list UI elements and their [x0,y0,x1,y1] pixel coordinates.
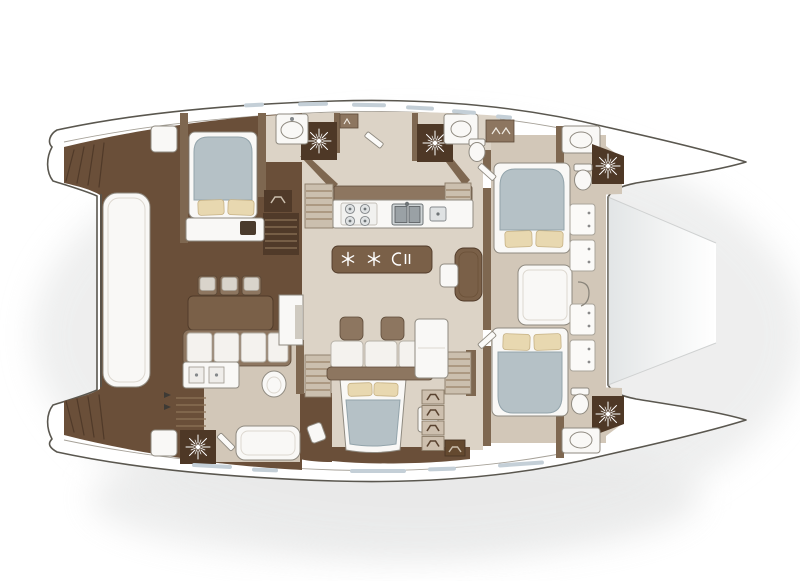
wall [258,113,266,197]
drawer-handle-icon [422,437,444,451]
sofa-cushion [331,341,363,368]
hull-window [352,103,386,108]
locker-hatch-icon [570,240,595,271]
hull-window [350,469,406,473]
locker-hatch-icon [570,304,595,335]
deck-box [445,440,465,456]
stairs-starboard-aft [445,352,471,394]
stove-burner-icon [341,203,377,226]
winch-box [264,190,292,212]
bed-aft-center [340,379,406,453]
sofa-cushion [365,341,397,368]
toilet-icon [571,388,589,414]
shower-drain-icon [596,154,620,178]
sofa-cushion [241,333,266,362]
shower-drain-icon [307,129,331,153]
hull-window [298,102,328,107]
port-side-panel [279,295,303,345]
shower-drain-icon [423,131,447,155]
toilet-icon [262,371,286,397]
toilet-icon [469,139,485,162]
floor-plan-canvas [0,0,800,581]
drawer-handle-icon [422,390,444,404]
foredeck-pad [518,265,572,325]
sofa-cushion [214,333,239,362]
stairs-port-forward [305,184,333,228]
locker-hatch-icon [570,204,595,235]
drawer-handle-icon [422,421,444,435]
wall [483,188,491,330]
pillow [348,383,372,397]
cockpit-bar [188,296,273,330]
pillow [503,334,531,351]
hanging-locker [486,120,514,142]
transom-hatch-top [151,126,177,152]
stairs-deck-aft [263,213,299,255]
transom-hatch-bottom [151,430,177,456]
wall [483,346,491,446]
pillow [536,231,564,248]
bed-port-aft [189,132,257,218]
sofa-cushion [187,333,212,362]
faucet [290,117,294,121]
floor-plan-page [0,0,800,581]
wall [296,340,304,394]
locker-hatch-icon [570,340,595,371]
desk-tv [240,221,256,235]
galley-sink-icon [392,202,423,225]
sink-icon [570,132,592,148]
sink-icon [451,121,471,137]
stern-platform [103,193,150,387]
bed-starboard-forward-bottom [492,328,568,416]
pillow [505,231,533,248]
crew-berth [236,426,300,460]
shower-drain-icon [186,435,210,459]
shower-drain-icon [596,402,620,426]
drawer-handle-icon [422,406,444,420]
cockpit-sofa [183,330,291,366]
bar-stool [242,276,261,295]
sink-icon [570,432,592,448]
chart-table-chair [440,264,458,287]
bar-stool [220,276,239,295]
toilet-icon [574,164,592,190]
ottoman [340,317,363,340]
appliance-knob [436,212,439,215]
bed-starboard-forward-top [494,163,570,253]
pillow [534,334,562,351]
pillow [228,200,255,216]
ottoman [381,317,404,340]
bar-stool [198,276,217,295]
sink-icon [281,122,303,139]
shelf-unit [340,114,358,128]
laundry-counter [183,362,239,388]
saloon-cabinet [415,319,448,378]
pillow [374,383,398,397]
pillow [198,200,225,216]
chart-table [455,248,482,301]
